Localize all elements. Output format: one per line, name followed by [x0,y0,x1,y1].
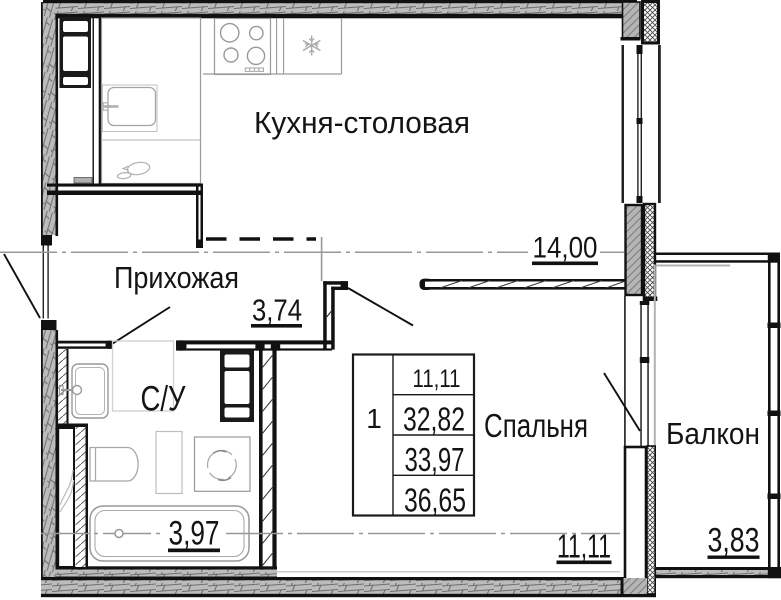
svg-text:3,97: 3,97 [169,515,220,553]
svg-text:36,65: 36,65 [404,482,466,519]
svg-text:33,97: 33,97 [405,441,465,478]
svg-text:11,11: 11,11 [557,528,611,565]
svg-text:3,83: 3,83 [708,522,760,560]
svg-text:14,00: 14,00 [533,232,598,265]
svg-text:1: 1 [366,403,382,434]
svg-text:С/У: С/У [141,380,187,419]
svg-text:32,82: 32,82 [403,401,465,438]
svg-text:11,11: 11,11 [413,365,461,393]
svg-text:3,74: 3,74 [252,293,302,328]
svg-text:Балкон: Балкон [666,416,760,451]
svg-text:Прихожая: Прихожая [114,260,239,295]
svg-text:Кухня-столовая: Кухня-столовая [254,105,470,140]
svg-text:Спальня: Спальня [484,407,588,444]
